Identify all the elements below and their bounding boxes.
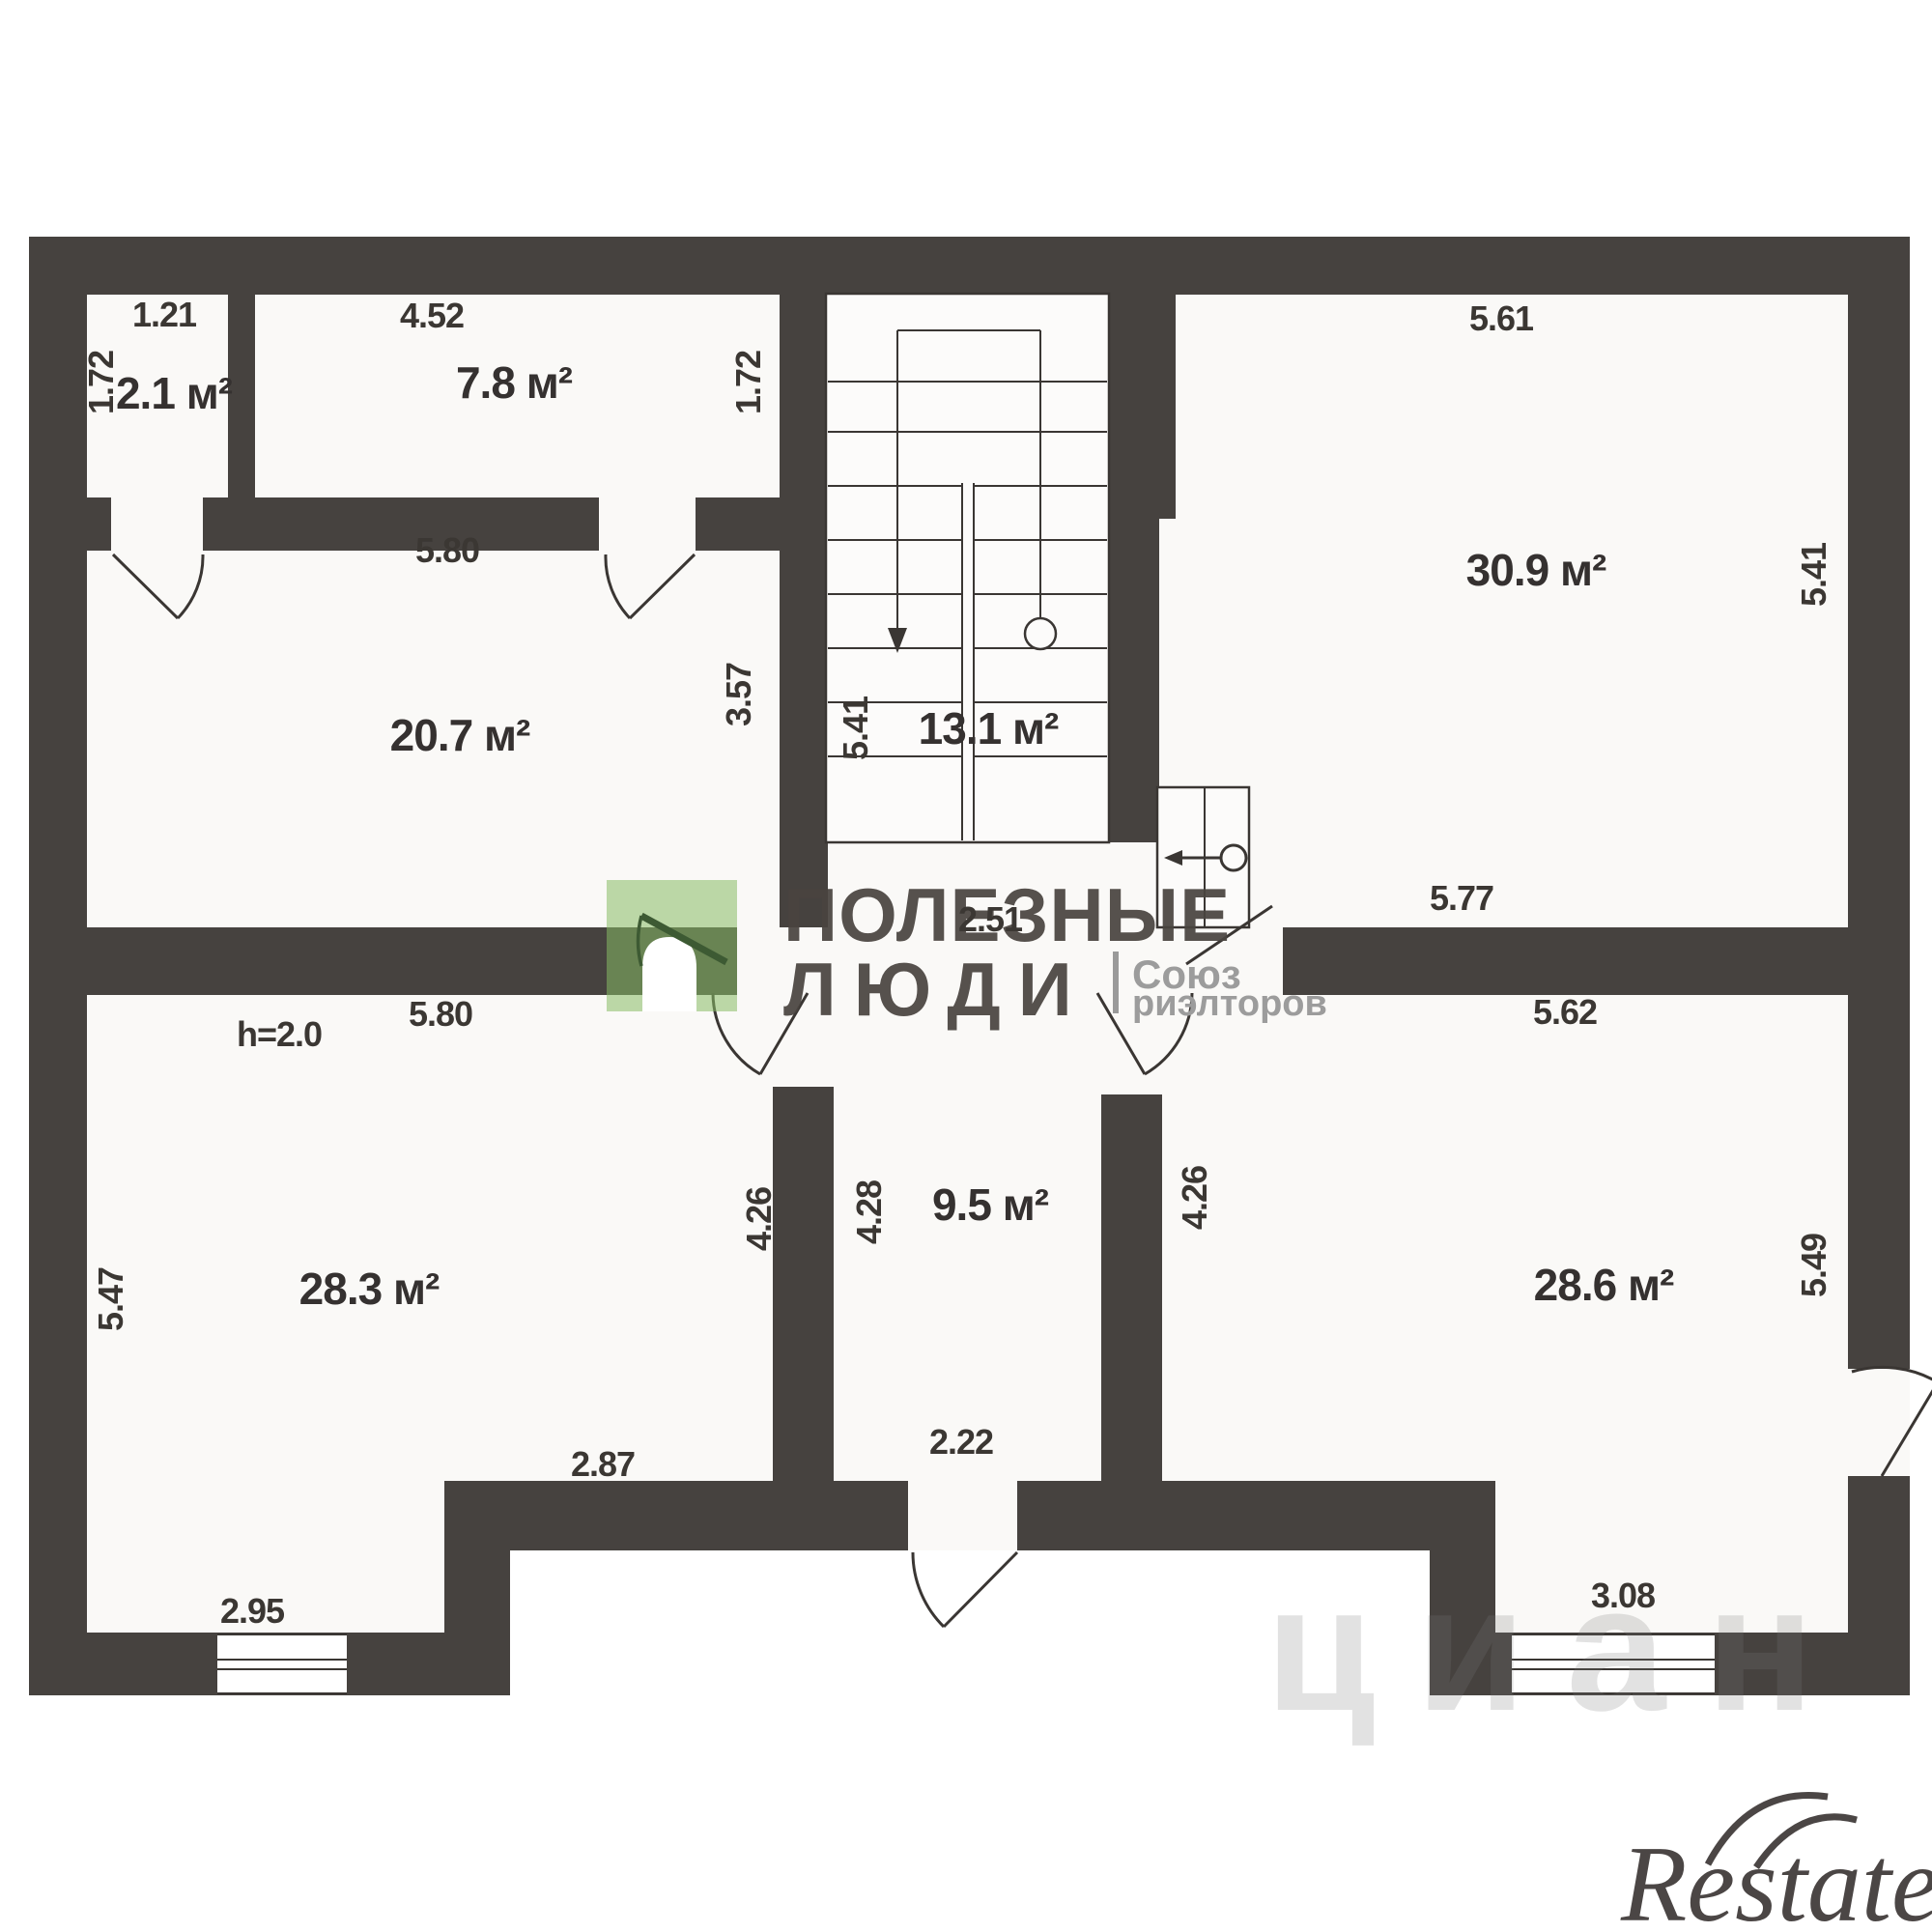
wall-stair-right-lower <box>1109 519 1159 842</box>
dimension-label: h=2.0 <box>237 1014 322 1055</box>
dimension-label: 4.26 <box>739 1187 780 1251</box>
dimension-label: 4.52 <box>400 296 464 336</box>
room-area-label: 9.5 м² <box>932 1179 1048 1231</box>
logo-icon <box>607 880 737 1011</box>
dimension-label: 4.26 <box>1175 1166 1215 1230</box>
wall-stair-right-upper <box>1109 237 1176 519</box>
wall-upper-rooms-b <box>203 497 599 551</box>
dimension-label: 5.61 <box>1469 298 1533 339</box>
dimension-label: 2.51 <box>958 899 1022 940</box>
room-area-label: 2.1 м² <box>116 367 232 419</box>
dimension-label: 1.72 <box>728 351 769 414</box>
wall-middle-right <box>1283 927 1848 995</box>
wall-right-upper <box>1848 237 1910 1369</box>
dimension-label: 5.41 <box>836 696 876 760</box>
window-glass <box>217 1634 347 1693</box>
dimension-label: 5.80 <box>409 994 472 1035</box>
room-area-label: 7.8 м² <box>456 356 572 409</box>
stair-post-circle <box>1025 618 1056 649</box>
wall-corridor-left <box>773 1087 834 1481</box>
restate-watermark: Restate <box>1621 1831 1932 1932</box>
wall-closet-divider <box>228 295 255 497</box>
logo-divider-bar <box>1113 952 1119 1013</box>
dimension-label: 2.95 <box>220 1591 284 1632</box>
dimension-label: 2.22 <box>929 1422 993 1463</box>
wall-upper-rooms-a <box>87 497 111 551</box>
wall-top <box>29 237 1910 295</box>
entry-door-knob <box>1221 845 1246 870</box>
wall-step-right <box>1017 1481 1492 1550</box>
logo-door-arch <box>642 937 696 1011</box>
dimension-label: 5.77 <box>1430 878 1493 919</box>
dimension-label: 5.62 <box>1533 992 1597 1033</box>
dimension-label: 5.41 <box>1794 543 1834 607</box>
logo-text-line2: ЛЮДИ <box>783 952 1090 1027</box>
dimension-label: 3.08 <box>1591 1576 1655 1616</box>
room-area-label: 20.7 м² <box>390 709 530 761</box>
dimension-label: 1.21 <box>132 295 196 335</box>
wall-upper-rooms-c <box>696 497 782 551</box>
dimension-label: 5.80 <box>415 530 479 571</box>
wall-step-left <box>444 1481 908 1550</box>
dimension-label: 4.28 <box>849 1180 890 1244</box>
wall-corridor-right <box>1101 1094 1162 1481</box>
dimension-label: 5.49 <box>1794 1234 1834 1297</box>
room-area-label: 28.6 м² <box>1534 1259 1674 1311</box>
cian-watermark: циан <box>1265 1560 1855 1739</box>
room-area-label: 13.1 м² <box>919 702 1059 754</box>
room-area-label: 30.9 м² <box>1466 544 1606 596</box>
dimension-label: 5.47 <box>91 1267 131 1331</box>
dimension-label: 2.87 <box>571 1444 635 1485</box>
dimension-label: 3.57 <box>719 663 759 726</box>
logo-subtext-line2: риэлторов <box>1132 985 1327 1022</box>
door-opening-right-wall <box>1848 1369 1910 1476</box>
floor-plan-canvas: ПОЛЕЗНЫЕ ЛЮДИ Союз риэлторов циан Restat… <box>0 0 1932 1932</box>
room-area-label: 28.3 м² <box>299 1263 440 1315</box>
window-left <box>217 1634 347 1693</box>
wall-stair-left <box>780 295 828 927</box>
